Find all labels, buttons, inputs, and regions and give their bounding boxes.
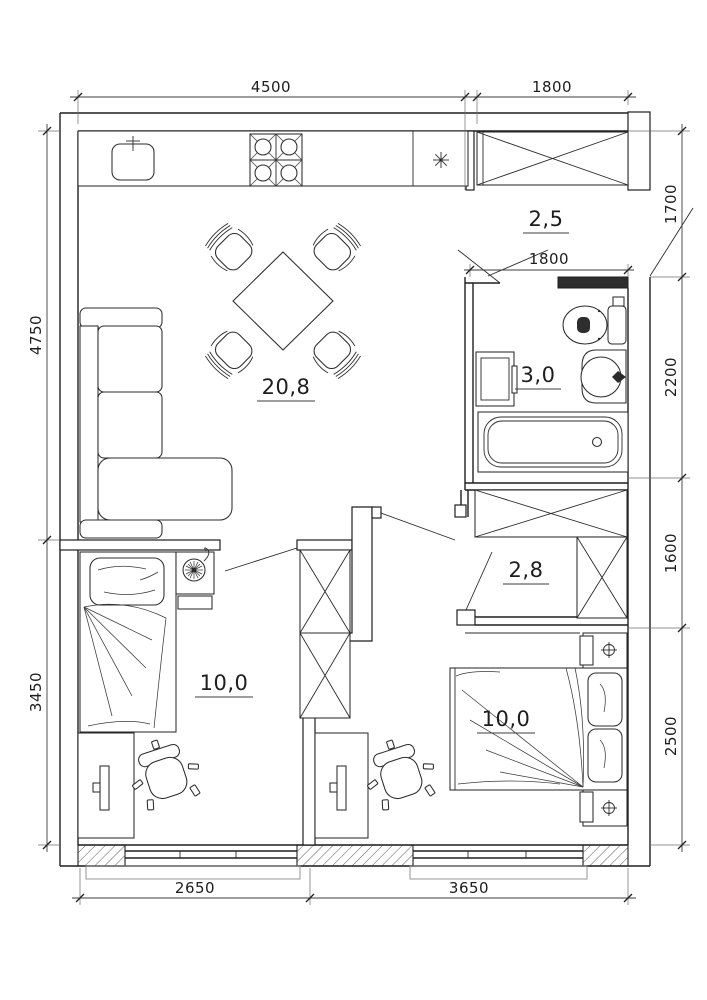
desks (78, 730, 443, 838)
hatched-pier (583, 845, 628, 866)
dim-left-4750: 4750 (27, 315, 45, 355)
window-sill (410, 866, 587, 879)
dim-bottom-3650: 3650 (449, 879, 489, 897)
vent-asterisk-icon (433, 152, 449, 168)
nightstand-icon (580, 790, 627, 826)
dimension-left: 4750 3450 (27, 124, 60, 852)
dim-bathroom-1800: 1800 (529, 250, 569, 268)
wardrobe-icon (477, 132, 628, 185)
kitchen (78, 131, 468, 186)
door-leaf-hallway (466, 552, 492, 610)
door-leaf-bedroom-left (225, 548, 297, 571)
window-sill (86, 866, 300, 879)
dim-right-2200: 2200 (662, 357, 680, 397)
room-label-bathroom: 3,0 (521, 363, 556, 387)
washing-machine-icon (476, 352, 517, 406)
monitor-icon (337, 766, 346, 810)
room-label-corridor: 2,5 (529, 207, 564, 231)
desk-icon (315, 733, 368, 838)
office-chair-icon (356, 730, 442, 814)
desk-icon (78, 733, 134, 838)
dim-left-3450: 3450 (27, 672, 45, 712)
monitor-icon (100, 766, 109, 810)
dining-chair-icon (307, 325, 365, 383)
room-label-bedroom-right: 10,0 (482, 707, 531, 731)
dining-chair-icon (201, 219, 259, 277)
single-bed-icon (80, 552, 176, 732)
dining-chair-icon (201, 325, 259, 383)
wardrobe-icon (577, 537, 627, 618)
dining-chair-icon (307, 219, 365, 277)
hatched-pier (297, 845, 413, 866)
room-label-hallway: 2,8 (509, 558, 544, 582)
dining-table-icon (233, 252, 333, 350)
dimension-bathroom-interior: 1800 (464, 250, 634, 277)
room-label-bedroom-left: 10,0 (200, 671, 249, 695)
door-leaf-corridor (381, 513, 455, 540)
wardrobe-icon (475, 490, 627, 537)
door-post (455, 505, 466, 517)
wardrobe-icon (300, 550, 350, 718)
dim-right-1600: 1600 (662, 533, 680, 573)
door-post (457, 610, 475, 625)
double-bed-icon (450, 668, 627, 790)
bathtub-drain (593, 438, 602, 447)
sofa-icon (80, 308, 232, 538)
windows (78, 845, 628, 879)
nightstand-icon (176, 548, 214, 609)
dim-bottom-2650: 2650 (175, 879, 215, 897)
dim-top-1800: 1800 (532, 78, 572, 96)
bathroom-top-wall-block (558, 277, 628, 288)
hatched-pier (78, 845, 125, 866)
washbasin-icon (581, 350, 626, 403)
dimension-right: 1700 2200 1600 2500 (628, 124, 690, 852)
dining-set (201, 219, 365, 383)
bedroom-left-top-wall (60, 540, 220, 550)
toilet-icon (563, 297, 626, 344)
room-label-living: 20,8 (262, 375, 311, 399)
bedroom-left-furniture (80, 548, 214, 732)
dim-right-1700: 1700 (662, 184, 680, 224)
dimension-bottom: 2650 3650 (72, 868, 636, 905)
bedroom-right-furniture (450, 633, 627, 826)
door-post (372, 507, 381, 518)
bathtub-icon (478, 412, 628, 472)
floor-plan-drawing: 4500 1800 1700 2200 1600 2500 4750 3450 (0, 0, 707, 1000)
dim-right-2500: 2500 (662, 716, 680, 756)
dim-top-4500: 4500 (251, 78, 291, 96)
stove-icon (250, 134, 302, 186)
nightstand-icon (580, 633, 627, 668)
floor-plan-page: 4500 1800 1700 2200 1600 2500 4750 3450 (0, 0, 707, 1000)
top-right-pier (628, 112, 650, 190)
